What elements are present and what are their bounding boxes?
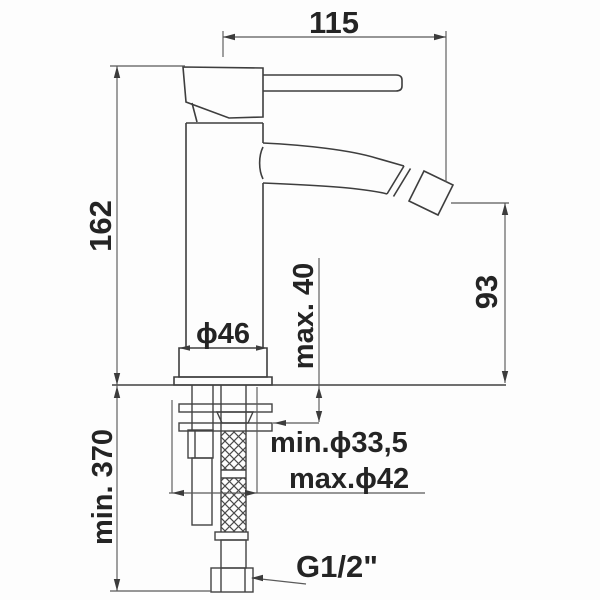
mounting-nut <box>188 430 213 458</box>
thread-callout: G1/2" <box>251 549 378 584</box>
dimension-spout-outlet-height: 93 <box>451 203 509 383</box>
base-flange <box>174 348 272 385</box>
mounting-washers <box>179 404 272 431</box>
faucet-body-column <box>186 123 263 348</box>
threaded-rod <box>192 458 212 525</box>
dim-max40-label: max. 40 <box>288 263 320 369</box>
drawing-canvas: 115 162 93 max. 40 ϕ46 min. 370 min.ϕ33 <box>0 0 600 600</box>
dim-162-label: 162 <box>83 200 118 252</box>
dim-min370-label: min. 370 <box>87 429 119 545</box>
faucet-head <box>183 67 263 122</box>
faucet-lever-handle <box>263 75 402 91</box>
dimension-total-height: 162 <box>83 66 185 385</box>
dim-d42-label: max.ϕ42 <box>289 463 409 495</box>
dim-d46-label: ϕ46 <box>196 318 250 350</box>
thread-label: G1/2" <box>296 549 378 584</box>
dim-d335-label: min.ϕ33,5 <box>270 427 408 459</box>
dim-115-label: 115 <box>309 5 359 40</box>
technical-drawing: 115 162 93 max. 40 ϕ46 min. 370 min.ϕ33 <box>0 0 600 600</box>
faucet-spout <box>260 143 411 197</box>
dimension-base-diameter: ϕ46 <box>179 318 267 351</box>
dimension-max-deck-thickness: max. 40 <box>288 258 322 422</box>
dimension-min-hole-diameter: min.ϕ33,5 <box>270 420 408 459</box>
dimension-spout-reach: 115 <box>223 5 446 182</box>
dim-93-label: 93 <box>469 275 504 309</box>
hose-connector-nut <box>211 568 253 592</box>
